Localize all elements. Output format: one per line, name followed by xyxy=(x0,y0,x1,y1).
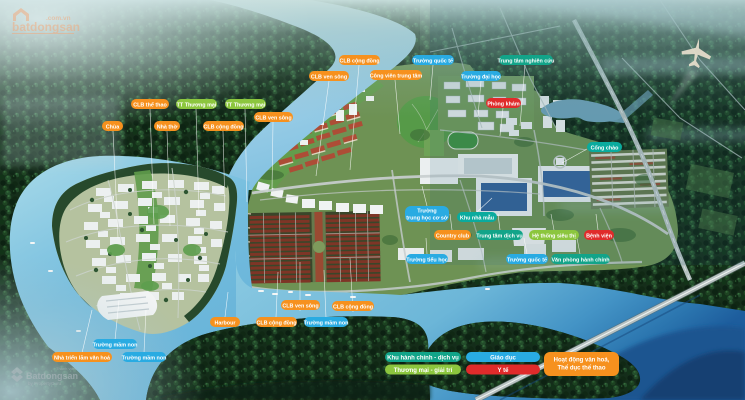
svg-text:Trung tâm nghiên cứu: Trung tâm nghiên cứu xyxy=(498,58,555,64)
svg-text:Harbour: Harbour xyxy=(215,320,237,326)
svg-text:Trường mầm non: Trường mầm non xyxy=(304,320,349,326)
svg-text:batdongsan: batdongsan xyxy=(12,20,80,34)
svg-text:Trường: Trường xyxy=(417,209,436,215)
svg-text:Bệnh viện: Bệnh viện xyxy=(586,233,612,239)
svg-text:Giáo dục: Giáo dục xyxy=(490,355,516,361)
svg-text:Trường tiểu học: Trường tiểu học xyxy=(406,256,448,263)
svg-text:Khu hành chính - dịch vụ: Khu hành chính - dịch vụ xyxy=(387,355,459,361)
svg-text:CLB cộng đồng: CLB cộng đồng xyxy=(333,304,373,310)
svg-text:Thành viên: Thành viên xyxy=(56,366,76,371)
svg-text:Country club: Country club xyxy=(436,233,470,239)
svg-text:Trung tâm dịch vụ: Trung tâm dịch vụ xyxy=(476,233,522,239)
svg-text:trung học cơ sở: trung học cơ sở xyxy=(406,216,448,222)
svg-text:Trường mầm non: Trường mầm non xyxy=(122,355,167,361)
svg-text:CLB cộng đồng: CLB cộng đồng xyxy=(203,124,243,130)
svg-text:Chùa: Chùa xyxy=(106,124,120,130)
svg-text:Phòng khám: Phòng khám xyxy=(487,101,520,107)
svg-text:Thể dục thể thao: Thể dục thể thao xyxy=(558,365,606,372)
svg-text:Nhà thờ: Nhà thờ xyxy=(157,124,178,130)
svg-text:Nhà triển lãm văn hoá: Nhà triển lãm văn hoá xyxy=(54,354,111,361)
svg-text:Công viên trung tâm: Công viên trung tâm xyxy=(370,73,423,79)
svg-text:Thương mại - giải trí: Thương mại - giải trí xyxy=(394,368,453,374)
svg-text:Trường quốc tế: Trường quốc tế xyxy=(413,57,453,64)
svg-text:CLB cộng đồng: CLB cộng đồng xyxy=(256,320,296,326)
svg-text:TT Thương mại: TT Thương mại xyxy=(226,102,266,108)
svg-text:Hệ thống siêu thị: Hệ thống siêu thị xyxy=(532,232,576,239)
svg-text:Y tế: Y tế xyxy=(498,367,510,374)
svg-text:CLB cộng đồng: CLB cộng đồng xyxy=(339,58,379,64)
svg-text:TT Thương mại: TT Thương mại xyxy=(177,102,217,108)
svg-text:CLB ven sông: CLB ven sông xyxy=(282,303,318,309)
svg-text:Trường quốc tế: Trường quốc tế xyxy=(507,256,547,263)
svg-text:Khu nhà mẫu: Khu nhà mẫu xyxy=(460,214,494,221)
svg-text:Hoạt động văn hoá,: Hoạt động văn hoá, xyxy=(554,358,610,364)
svg-text:CLB ven sông: CLB ven sông xyxy=(311,74,347,80)
svg-text:Batdongsan: Batdongsan xyxy=(26,371,78,381)
svg-text:Trường đại học: Trường đại học xyxy=(461,74,501,80)
svg-text:Văn phòng hành chính: Văn phòng hành chính xyxy=(551,257,609,263)
svg-text:Cổng chào: Cổng chào xyxy=(591,144,620,151)
svg-text:by PropertyGuru: by PropertyGuru xyxy=(28,381,62,386)
svg-text:CLB thể thao: CLB thể thao xyxy=(133,101,167,108)
svg-text:Trường mầm non: Trường mầm non xyxy=(93,342,138,348)
svg-text:CLB ven sông: CLB ven sông xyxy=(255,115,291,121)
